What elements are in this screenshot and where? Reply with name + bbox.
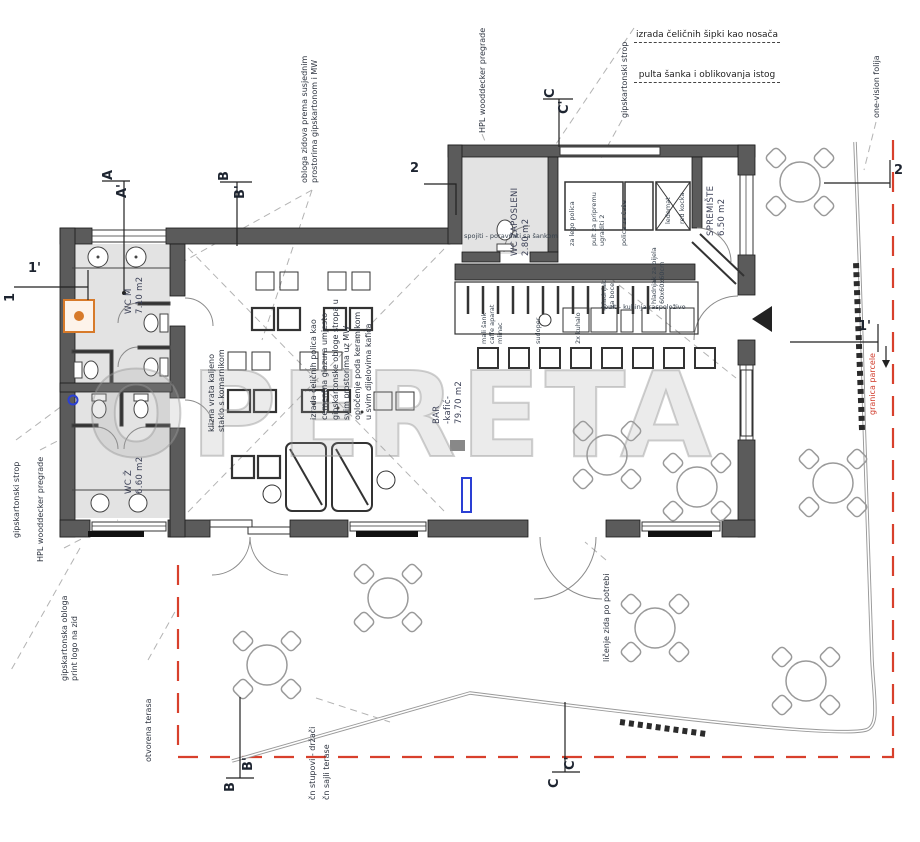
room-label-wc-staff: WC ZAPOSLENI 2.80 m2: [510, 188, 532, 256]
floor-plan-drawing: OPERETA izrada čeličnih šipki kao nosača…: [0, 0, 920, 842]
room-label-bar: BAR -kafić- 79.70 m2: [432, 381, 465, 424]
section-marker-b-prime-bottom: B': [244, 757, 254, 771]
annotation-terrace-cables: čn sajli terase: [322, 744, 332, 800]
section-marker-c-prime-top: C': [560, 100, 570, 114]
room-label-wc-z: WC Ž 6.60 m2: [124, 457, 146, 494]
equipment-wine-fridge: hladnjak za bijela 60x60x60cm: [650, 247, 666, 304]
entrance-arrow-icon: [752, 306, 772, 332]
counter-post: [450, 440, 465, 451]
steel-bars-note: izrada čeličnih šipki kao nosača pulta š…: [634, 3, 780, 96]
annotation-spec-block: izrada čeličnih polica kao cementna glaz…: [308, 299, 374, 420]
section-marker-b-top: B: [220, 171, 230, 181]
room-label-wc-m: WC M 7.10 m2: [124, 277, 146, 314]
section-marker-b-bottom: B: [226, 782, 236, 792]
equipment-coffee-station: mali šank caffe aparat mlinac: [480, 305, 504, 344]
counter-note: pult - kuhinja raspoloživo: [604, 303, 686, 311]
section-marker-1-prime-left: 1': [28, 264, 41, 274]
annotation-gypsum-ceiling-top: gipskartonski strop: [620, 42, 630, 118]
equipment-glass-shelf: polica za čaše: [620, 200, 628, 246]
annotation-sliding-door: klizna vrata kaljeno staklo s komarnikom: [207, 349, 227, 432]
section-marker-1-prime-right: 1': [858, 322, 871, 332]
annotation-one-vision-foil: one-vision folija: [872, 55, 882, 118]
section-marker-a: A: [104, 170, 114, 180]
annotation-hpl-partitions-left: HPL wooddecker pregrade: [36, 457, 46, 562]
equipment-cookers: 2x kuhalo: [574, 312, 582, 344]
annotation-gypsum-logo-wall: gipskartonska obloga print logo na zid: [60, 595, 80, 681]
blue-door-element: [462, 478, 471, 512]
steel-bars-note-line1: izrada čeličnih šipki kao nosača: [634, 29, 780, 43]
section-marker-b-prime-top: B': [236, 185, 246, 199]
section-marker-c-bottom: C: [550, 778, 560, 788]
equipment-sink: sudoper: [534, 318, 542, 344]
annotation-steel-posts: čn stupovi - držači: [308, 727, 318, 800]
equipment-ice-cubes: red kocka: [678, 193, 686, 224]
annotation-gypsum-ceiling-left: gipskartonski strop: [12, 462, 22, 538]
steel-bars-note-line2: pulta šanka i oblikovanja istog: [634, 69, 780, 83]
equipment-lego-shelf: za lego polica: [568, 201, 576, 246]
section-marker-c-prime-bottom: C': [566, 756, 576, 770]
room-label-storage: SPREMIŠTE 6.50 m2: [706, 186, 728, 236]
annotation-hpl-partitions-top: HPL wooddecker pregrade: [478, 28, 488, 133]
annotation-open-terrace: otvorena terasa: [144, 698, 154, 762]
section-marker-a-prime: A': [118, 184, 128, 198]
annotation-parcel-boundary: granica parcele: [868, 353, 878, 415]
section-marker-2-right: 2: [894, 166, 903, 176]
section-marker-c-top: C: [546, 88, 556, 98]
section-marker-2-left: 2: [410, 164, 419, 174]
bar-top-note: spojiti - poravnati sa šankom: [464, 232, 558, 240]
section-marker-1-left-rotated: 1: [6, 293, 16, 302]
annotation-wall-cladding: obloga zidova prema susjednim prostorima…: [300, 56, 320, 183]
annotation-wall-painting: ličenje zida po potrebi: [602, 574, 612, 662]
equipment-ice-machine: ledomat: [664, 197, 672, 224]
equipment-prep-counter: pult za pripremu ugraditi 2: [590, 192, 606, 246]
